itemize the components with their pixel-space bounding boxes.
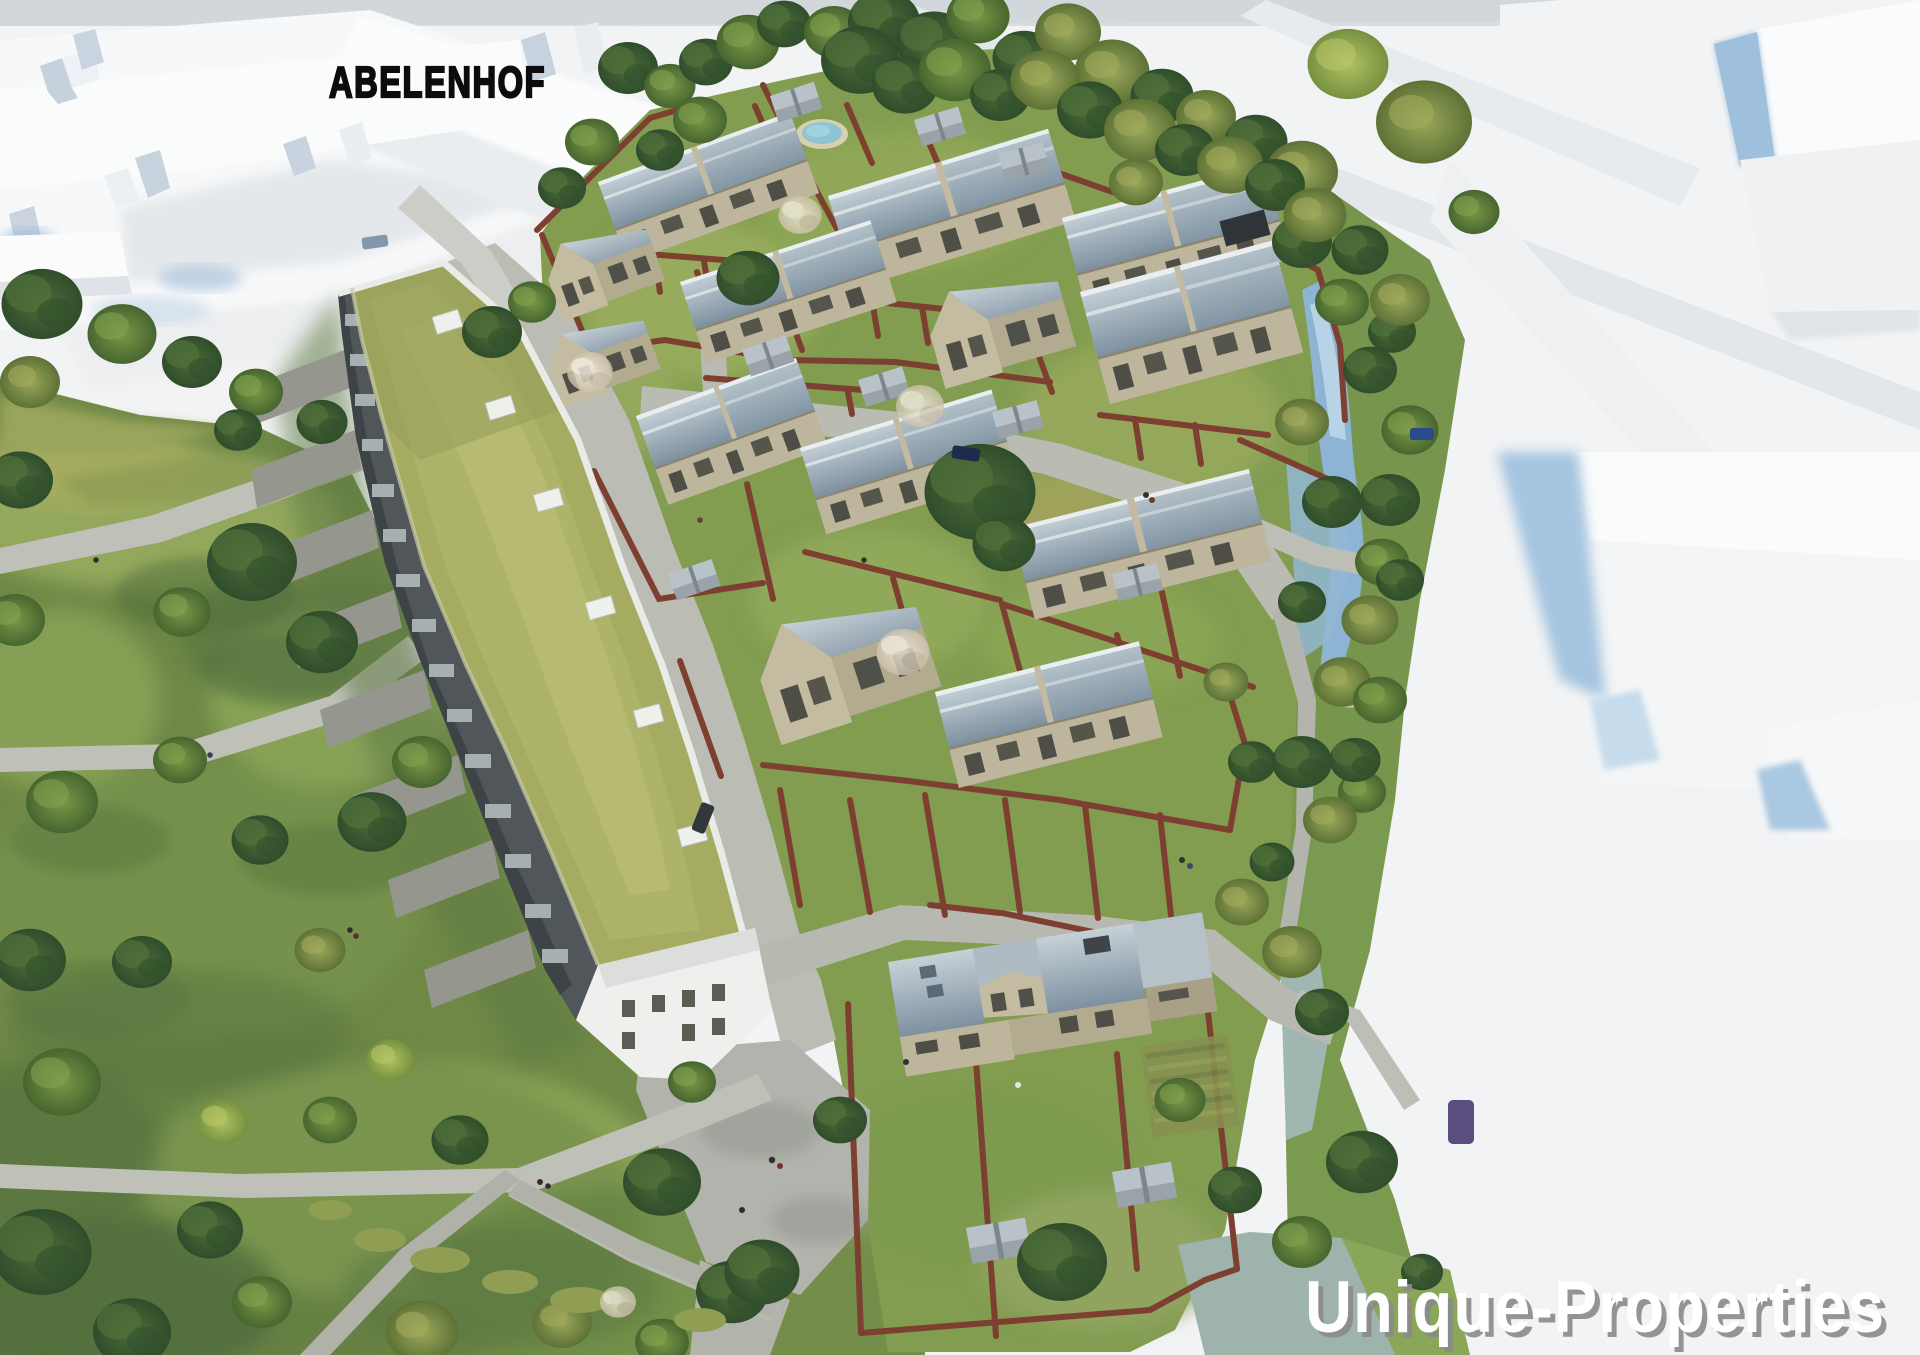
- svg-text:Unique-Properties: Unique-Properties: [1305, 1267, 1885, 1348]
- svg-text:ABELENHOF: ABELENHOF: [329, 58, 546, 107]
